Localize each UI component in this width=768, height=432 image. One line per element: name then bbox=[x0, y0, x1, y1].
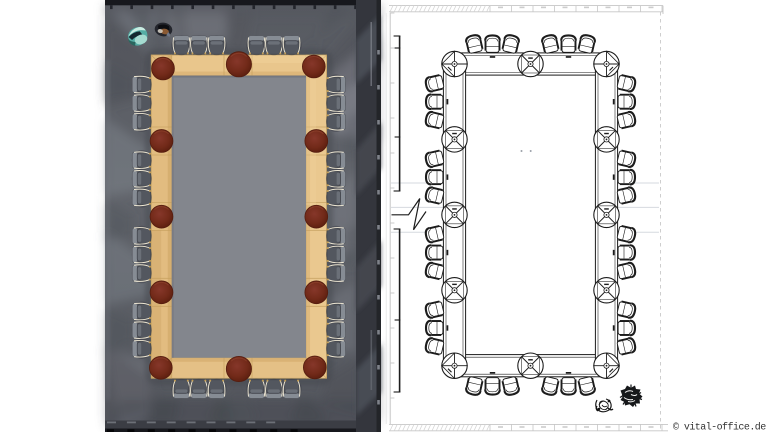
svg-text:© vital-office.de: © vital-office.de bbox=[673, 422, 766, 432]
